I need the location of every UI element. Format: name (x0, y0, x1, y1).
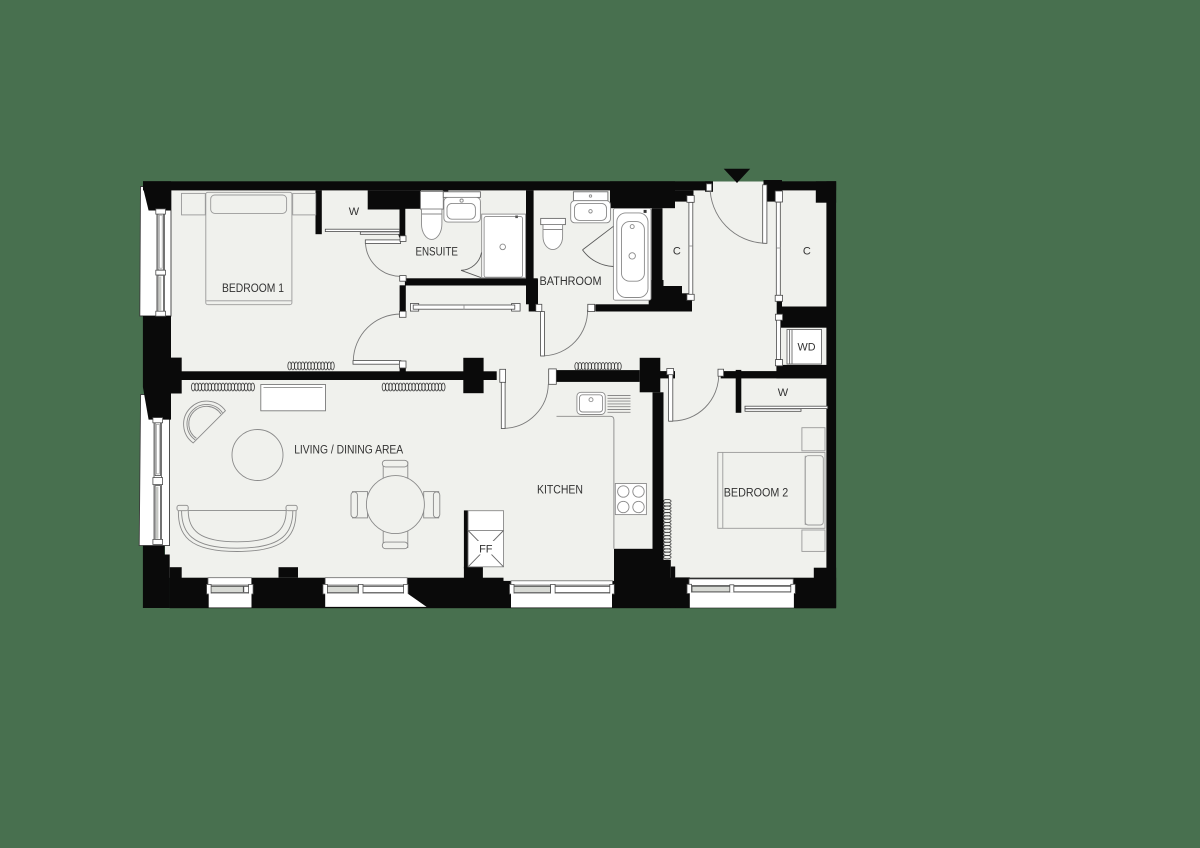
svg-text:BEDROOM 1: BEDROOM 1 (222, 283, 284, 295)
svg-text:C: C (803, 246, 811, 258)
svg-text:BATHROOM: BATHROOM (540, 276, 602, 288)
svg-text:BEDROOM 2: BEDROOM 2 (724, 488, 789, 500)
svg-text:ENSUITE: ENSUITE (415, 247, 458, 259)
svg-text:W: W (349, 206, 360, 218)
svg-text:LIVING / DINING AREA: LIVING / DINING AREA (294, 444, 403, 456)
svg-text:FF: FF (479, 544, 493, 556)
svg-text:KITCHEN: KITCHEN (537, 484, 583, 496)
svg-text:W: W (778, 387, 789, 399)
svg-text:WD: WD (798, 342, 816, 354)
svg-text:C: C (673, 246, 681, 258)
